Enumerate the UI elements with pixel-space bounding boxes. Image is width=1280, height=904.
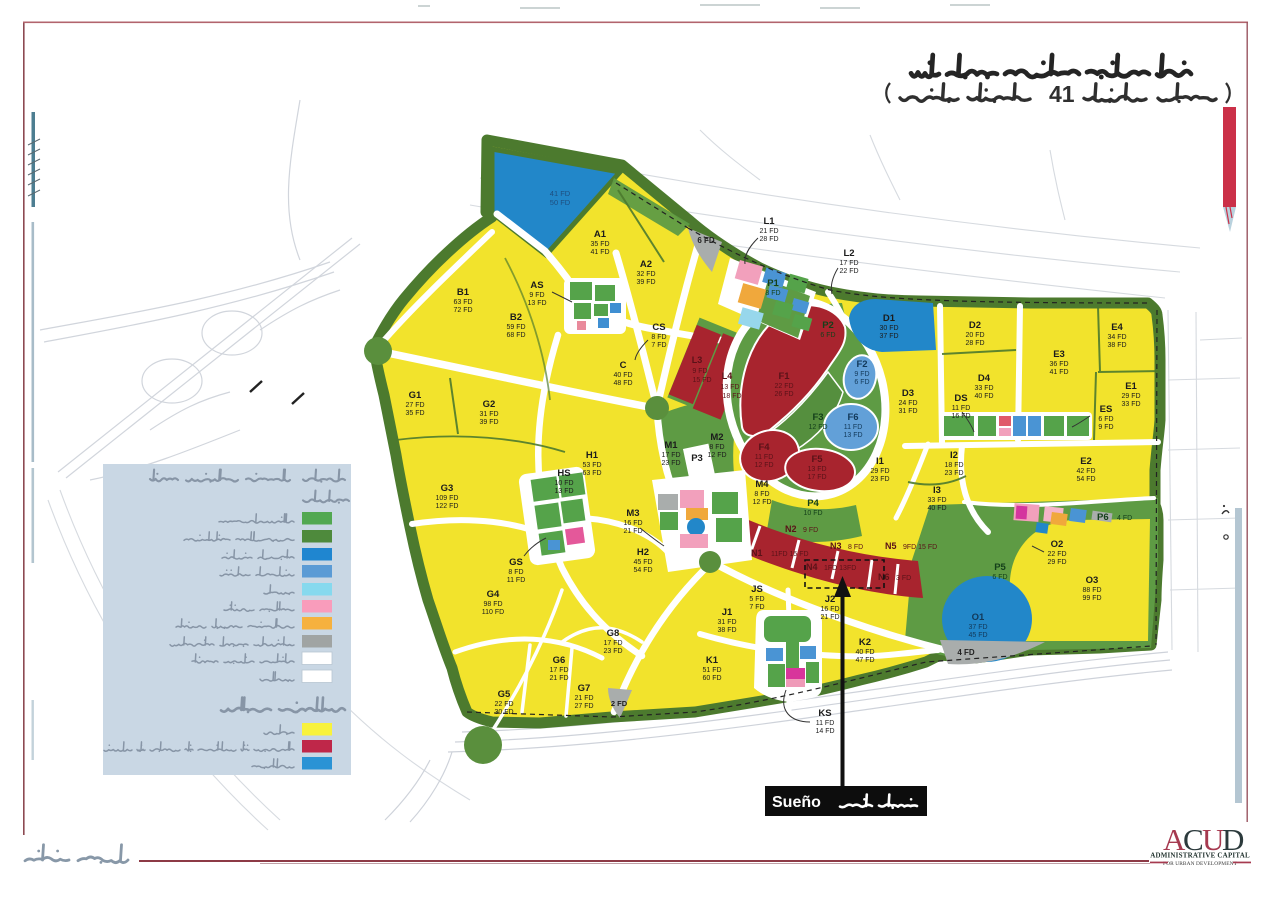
svg-text:72 FD: 72 FD [453, 307, 472, 314]
svg-text:M1: M1 [664, 440, 678, 451]
svg-text:21 FD: 21 FD [623, 528, 642, 535]
svg-text:33 FD: 33 FD [927, 497, 946, 504]
svg-text:G7: G7 [578, 683, 591, 694]
svg-text:12 FD: 12 FD [754, 462, 773, 469]
svg-text:4 FD: 4 FD [957, 648, 975, 657]
svg-text:ADMINISTRATIVE CAPITAL: ADMINISTRATIVE CAPITAL [1150, 852, 1250, 860]
svg-text:Sueño: Sueño [772, 794, 821, 811]
svg-text:63 FD: 63 FD [582, 470, 601, 477]
svg-text:11 FD: 11 FD [755, 454, 774, 461]
svg-text:F5: F5 [811, 454, 823, 465]
svg-text:FOR URBAN DEVELOPMENT: FOR URBAN DEVELOPMENT [1163, 861, 1238, 867]
svg-text:L3: L3 [692, 355, 703, 365]
svg-text:30 FD: 30 FD [879, 325, 898, 332]
svg-text:29 FD: 29 FD [870, 468, 889, 475]
svg-text:98 FD: 98 FD [483, 601, 502, 608]
svg-text:60 FD: 60 FD [702, 675, 721, 682]
svg-text:N2: N2 [785, 524, 797, 534]
svg-text:AS: AS [530, 280, 543, 291]
svg-text:11FD 15 FD: 11FD 15 FD [771, 551, 809, 558]
svg-text:42 FD: 42 FD [1076, 468, 1095, 475]
svg-text:10 FD: 10 FD [554, 480, 573, 487]
svg-text:53 FD: 53 FD [582, 462, 601, 469]
svg-text:N3: N3 [830, 541, 842, 551]
svg-text:16 FD: 16 FD [951, 413, 970, 420]
svg-text:8 FD: 8 FD [709, 444, 724, 451]
svg-text:12 FD: 12 FD [707, 452, 726, 459]
svg-text:D2: D2 [969, 320, 981, 331]
svg-text:21 FD: 21 FD [549, 675, 568, 682]
svg-text:F4: F4 [758, 442, 770, 453]
svg-text:6 FD: 6 FD [697, 236, 715, 245]
svg-text:E3: E3 [1053, 349, 1065, 360]
svg-text:35 FD: 35 FD [405, 410, 424, 417]
svg-text:27 FD: 27 FD [574, 703, 593, 710]
svg-text:28 FD: 28 FD [965, 340, 984, 347]
svg-text:10 FD: 10 FD [803, 510, 822, 517]
svg-text:F6: F6 [847, 412, 858, 423]
svg-text:P4: P4 [807, 498, 819, 509]
svg-text:40 FD: 40 FD [974, 393, 993, 400]
svg-text:18 FD: 18 FD [722, 393, 741, 400]
svg-text:O3: O3 [1086, 575, 1099, 586]
svg-text:N4: N4 [806, 562, 818, 572]
svg-text:39 FD: 39 FD [479, 419, 498, 426]
svg-text:45 FD: 45 FD [968, 632, 987, 639]
svg-text:39 FD: 39 FD [636, 279, 655, 286]
svg-text:12 FD: 12 FD [752, 499, 771, 506]
svg-text:GS: GS [509, 557, 523, 568]
svg-text:C: C [620, 360, 627, 371]
svg-text:P5: P5 [994, 562, 1006, 573]
svg-text:O1: O1 [972, 612, 985, 623]
svg-text:40 FD: 40 FD [613, 372, 632, 379]
svg-text:6 FD: 6 FD [1098, 416, 1113, 423]
svg-text:31 FD: 31 FD [898, 408, 917, 415]
svg-text:N1: N1 [751, 548, 763, 558]
svg-text:36 FD: 36 FD [1049, 361, 1068, 368]
svg-text:CS: CS [652, 322, 665, 333]
svg-text:29 FD: 29 FD [1121, 393, 1140, 400]
svg-text:N5: N5 [885, 541, 897, 551]
svg-text:D1: D1 [883, 313, 896, 324]
svg-text:18 FD: 18 FD [944, 462, 963, 469]
svg-text:5 FD: 5 FD [749, 596, 764, 603]
svg-text:31 FD: 31 FD [479, 411, 498, 418]
svg-text:8 FD: 8 FD [508, 569, 523, 576]
svg-text:G6: G6 [553, 655, 566, 666]
svg-text:J1: J1 [722, 607, 733, 618]
svg-text:1FD 13FD: 1FD 13FD [824, 565, 856, 572]
svg-text:E4: E4 [1111, 322, 1123, 333]
svg-text:22 FD: 22 FD [494, 701, 513, 708]
svg-text:M2: M2 [710, 432, 723, 443]
svg-text:13 FD: 13 FD [843, 432, 862, 439]
svg-text:17 FD: 17 FD [603, 640, 622, 647]
svg-text:17 FD: 17 FD [807, 474, 826, 481]
svg-text:8 FD: 8 FD [754, 491, 769, 498]
svg-text:88 FD: 88 FD [1082, 587, 1101, 594]
svg-text:11 FD: 11 FD [952, 405, 971, 412]
svg-text:D3: D3 [902, 388, 914, 399]
svg-text:41: 41 [1049, 81, 1075, 107]
svg-text:9 FD: 9 FD [692, 368, 707, 375]
svg-text:2 FD: 2 FD [611, 699, 628, 708]
svg-text:41 FD: 41 FD [590, 249, 609, 256]
svg-text:37 FD: 37 FD [879, 333, 898, 340]
svg-text:G5: G5 [498, 689, 511, 700]
svg-text:35 FD: 35 FD [590, 241, 609, 248]
svg-text:E1: E1 [1125, 381, 1137, 392]
svg-text:41 FD: 41 FD [550, 189, 571, 198]
svg-text:31 FD: 31 FD [717, 619, 736, 626]
svg-text:40 FD: 40 FD [855, 649, 874, 656]
svg-text:H1: H1 [586, 450, 599, 461]
svg-text:F1: F1 [778, 371, 790, 382]
svg-text:8 FD: 8 FD [848, 544, 863, 551]
svg-text:K2: K2 [859, 637, 871, 648]
svg-text:I1: I1 [876, 456, 885, 467]
svg-text:16 FD: 16 FD [820, 606, 839, 613]
svg-text:11 FD: 11 FD [816, 720, 835, 727]
svg-text:24 FD: 24 FD [898, 400, 917, 407]
svg-text:M4: M4 [755, 479, 769, 490]
svg-text:9 FD: 9 FD [803, 527, 818, 534]
svg-text:38 FD: 38 FD [1107, 342, 1126, 349]
svg-text:P6: P6 [1097, 512, 1109, 523]
svg-text:99 FD: 99 FD [1082, 595, 1101, 602]
svg-text:B2: B2 [510, 312, 522, 323]
svg-text:A2: A2 [640, 259, 652, 270]
svg-text:17 FD: 17 FD [839, 260, 858, 267]
svg-text:16 FD: 16 FD [623, 520, 642, 527]
svg-text:M3: M3 [626, 508, 639, 519]
svg-text:P1: P1 [767, 278, 779, 289]
svg-text:O2: O2 [1051, 539, 1064, 550]
svg-text:HS: HS [557, 468, 570, 479]
svg-text:J2: J2 [825, 594, 836, 605]
svg-text:P3: P3 [691, 453, 703, 464]
svg-text:17 FD: 17 FD [661, 452, 680, 459]
svg-text:34 FD: 34 FD [1107, 334, 1126, 341]
svg-text:JS: JS [751, 584, 763, 595]
svg-text:6 FD: 6 FD [854, 379, 869, 386]
svg-text:9 FD: 9 FD [1098, 424, 1113, 431]
svg-text:51 FD: 51 FD [702, 667, 721, 674]
svg-text:KS: KS [818, 708, 831, 719]
svg-text:G4: G4 [487, 589, 500, 600]
svg-text:109 FD: 109 FD [436, 495, 459, 502]
svg-text:63 FD: 63 FD [453, 299, 472, 306]
svg-text:33 FD: 33 FD [974, 385, 993, 392]
svg-text:D4: D4 [978, 373, 991, 384]
svg-text:13 FD: 13 FD [720, 384, 739, 391]
svg-text:23 FD: 23 FD [870, 476, 889, 483]
svg-text:G1: G1 [409, 390, 422, 401]
svg-text:27 FD: 27 FD [405, 402, 424, 409]
svg-text:11 FD: 11 FD [844, 424, 863, 431]
svg-text:22 FD: 22 FD [839, 268, 858, 275]
svg-text:45 FD: 45 FD [633, 559, 652, 566]
svg-text:F2: F2 [856, 359, 867, 370]
svg-text:A1: A1 [594, 229, 607, 240]
svg-text:L4: L4 [722, 371, 733, 381]
svg-text:G8: G8 [607, 628, 620, 639]
svg-text:H2: H2 [637, 547, 649, 558]
svg-text:30 FD: 30 FD [494, 709, 513, 716]
svg-text:40 FD: 40 FD [927, 505, 946, 512]
svg-text:13 FD: 13 FD [807, 466, 826, 473]
svg-text:54 FD: 54 FD [1076, 476, 1095, 483]
svg-text:26 FD: 26 FD [774, 391, 793, 398]
svg-text:13 FD: 13 FD [527, 300, 546, 307]
svg-text:68 FD: 68 FD [506, 332, 525, 339]
svg-text:11 FD: 11 FD [507, 577, 526, 584]
svg-text:ES: ES [1100, 404, 1113, 415]
svg-text:4 FD: 4 FD [1117, 515, 1132, 522]
svg-text:20 FD: 20 FD [965, 332, 984, 339]
svg-text:B1: B1 [457, 287, 470, 298]
svg-text:41 FD: 41 FD [1049, 369, 1068, 376]
svg-text:21 FD: 21 FD [759, 228, 778, 235]
svg-text:E2: E2 [1080, 456, 1092, 467]
svg-text:7 FD: 7 FD [749, 604, 764, 611]
svg-text:L1: L1 [763, 216, 775, 227]
svg-text:23 FD: 23 FD [944, 470, 963, 477]
svg-text:47 FD: 47 FD [855, 657, 874, 664]
svg-text:48 FD: 48 FD [613, 380, 632, 387]
svg-text:28 FD: 28 FD [759, 236, 778, 243]
svg-text:23 FD: 23 FD [603, 648, 622, 655]
svg-text:13 FD: 13 FD [554, 488, 573, 495]
svg-text:12 FD: 12 FD [808, 424, 827, 431]
svg-text:23 FD: 23 FD [661, 460, 680, 467]
svg-text:29 FD: 29 FD [1047, 559, 1066, 566]
svg-text:P2: P2 [822, 320, 834, 331]
svg-text:3 FD: 3 FD [896, 575, 911, 582]
svg-text:33 FD: 33 FD [1121, 401, 1140, 408]
svg-text:50 FD: 50 FD [550, 198, 571, 207]
svg-text:17 FD: 17 FD [549, 667, 568, 674]
svg-text:F3: F3 [812, 412, 823, 423]
svg-text:22 FD: 22 FD [774, 383, 793, 390]
svg-text:110 FD: 110 FD [482, 609, 504, 616]
svg-text:8 FD: 8 FD [651, 334, 666, 341]
svg-text:K1: K1 [706, 655, 719, 666]
svg-text:7 FD: 7 FD [651, 342, 666, 349]
svg-text:I3: I3 [933, 485, 941, 496]
svg-text:122 FD: 122 FD [436, 503, 459, 510]
svg-text:G3: G3 [441, 483, 454, 494]
svg-text:32 FD: 32 FD [636, 271, 655, 278]
svg-text:9 FD: 9 FD [529, 292, 544, 299]
svg-text:38 FD: 38 FD [717, 627, 736, 634]
svg-text:15 FD: 15 FD [692, 377, 711, 384]
svg-text:21 FD: 21 FD [820, 614, 839, 621]
svg-text:L2: L2 [843, 248, 854, 259]
svg-text:DS: DS [954, 393, 967, 404]
svg-text:6 FD: 6 FD [992, 574, 1007, 581]
svg-text:9FD 15 FD: 9FD 15 FD [903, 544, 937, 551]
svg-text:21 FD: 21 FD [574, 695, 593, 702]
svg-text:I2: I2 [950, 450, 958, 461]
svg-text:9 FD: 9 FD [854, 371, 869, 378]
svg-text:59 FD: 59 FD [506, 324, 525, 331]
svg-text:54 FD: 54 FD [633, 567, 652, 574]
svg-text:8 FD: 8 FD [765, 290, 780, 297]
svg-text:6 FD: 6 FD [820, 332, 835, 339]
svg-text:14 FD: 14 FD [815, 728, 834, 735]
svg-text:22 FD: 22 FD [1047, 551, 1066, 558]
svg-text:37 FD: 37 FD [968, 624, 987, 631]
svg-text:G2: G2 [483, 399, 496, 410]
